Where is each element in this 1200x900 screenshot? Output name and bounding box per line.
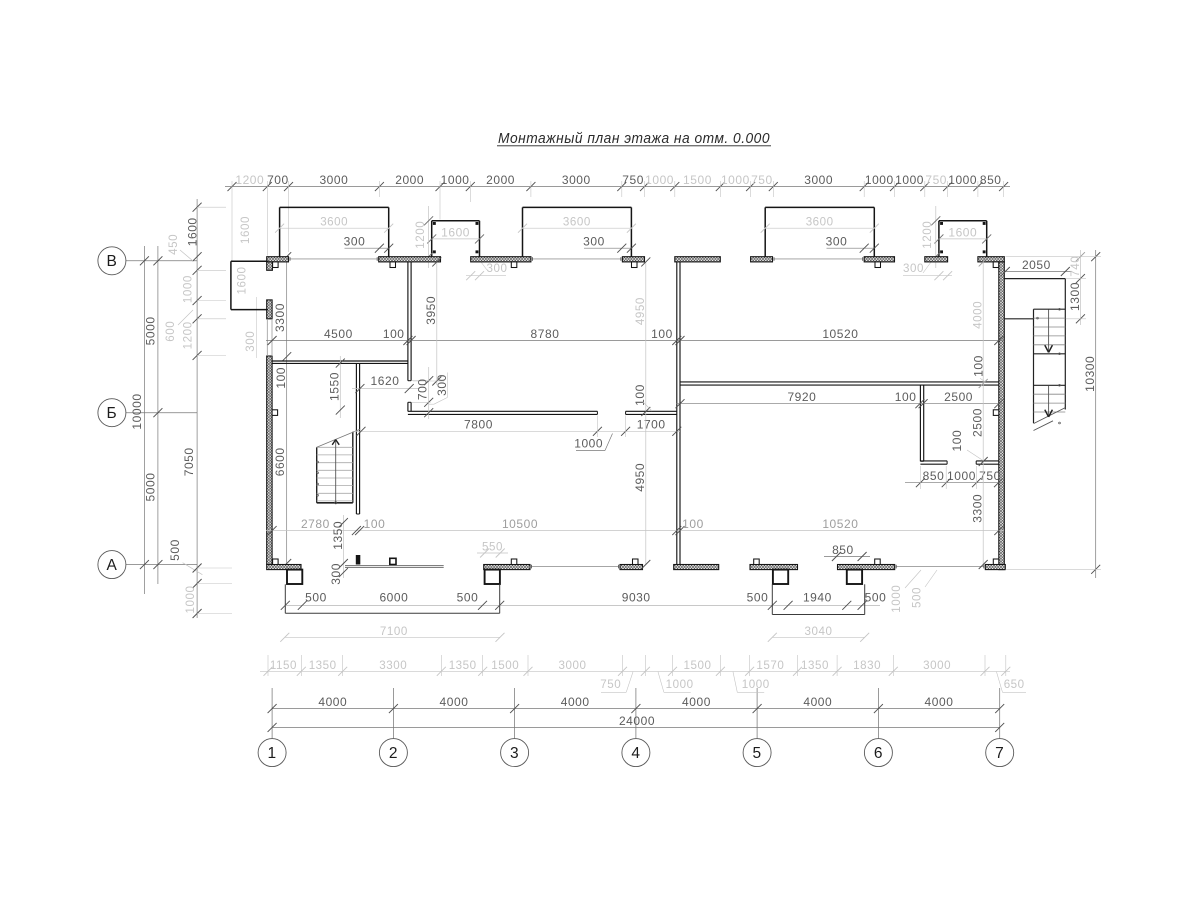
svg-text:1570: 1570	[756, 659, 784, 672]
svg-text:1300: 1300	[1068, 282, 1082, 311]
svg-text:500: 500	[168, 539, 182, 561]
svg-text:3: 3	[510, 745, 519, 762]
svg-text:1000: 1000	[574, 437, 603, 451]
svg-text:1000: 1000	[895, 173, 924, 187]
svg-text:1000: 1000	[865, 173, 894, 187]
svg-text:1200: 1200	[414, 221, 427, 249]
svg-text:5000: 5000	[144, 316, 158, 345]
svg-text:1600: 1600	[185, 217, 199, 246]
svg-text:7: 7	[995, 745, 1004, 762]
svg-text:850: 850	[980, 173, 1002, 187]
svg-text:2500: 2500	[971, 408, 985, 437]
svg-text:7050: 7050	[182, 447, 196, 476]
svg-text:1200: 1200	[182, 321, 195, 349]
svg-text:1000: 1000	[182, 275, 195, 303]
svg-text:4950: 4950	[633, 463, 647, 492]
svg-text:740: 740	[1069, 256, 1082, 277]
svg-text:9030: 9030	[622, 591, 651, 605]
svg-text:100: 100	[895, 390, 917, 404]
svg-text:100: 100	[651, 327, 673, 341]
svg-text:1700: 1700	[637, 418, 666, 432]
svg-text:750: 750	[600, 678, 621, 691]
svg-text:1000: 1000	[184, 586, 197, 614]
svg-text:550: 550	[482, 541, 503, 554]
svg-text:700: 700	[267, 173, 289, 187]
svg-text:3000: 3000	[562, 173, 591, 187]
svg-text:Монтажный план этажа на отм. 0: Монтажный план этажа на отм. 0.000	[498, 130, 770, 147]
svg-text:100: 100	[633, 384, 647, 406]
svg-text:1600: 1600	[948, 225, 977, 239]
svg-text:Б: Б	[107, 405, 118, 422]
svg-text:300: 300	[244, 331, 257, 352]
svg-text:1350: 1350	[801, 659, 829, 672]
svg-text:2: 2	[389, 745, 398, 762]
svg-text:2780: 2780	[301, 517, 330, 531]
svg-text:1: 1	[268, 745, 277, 762]
svg-text:3600: 3600	[563, 216, 591, 229]
svg-text:3000: 3000	[559, 659, 587, 672]
svg-text:850: 850	[923, 469, 945, 483]
svg-text:1000: 1000	[645, 173, 674, 187]
svg-text:3300: 3300	[379, 659, 407, 672]
svg-text:3950: 3950	[424, 296, 438, 325]
svg-text:1200: 1200	[921, 221, 934, 249]
svg-text:500: 500	[457, 591, 479, 605]
svg-text:1350: 1350	[449, 659, 477, 672]
svg-text:10000: 10000	[130, 393, 144, 429]
svg-text:500: 500	[865, 591, 887, 605]
svg-text:100: 100	[682, 517, 704, 531]
svg-text:7800: 7800	[464, 418, 493, 432]
svg-text:5: 5	[753, 745, 762, 762]
svg-text:3000: 3000	[804, 173, 833, 187]
svg-text:450: 450	[167, 234, 180, 255]
svg-text:1500: 1500	[684, 659, 712, 672]
svg-text:300: 300	[826, 235, 848, 249]
svg-text:100: 100	[950, 430, 964, 452]
svg-text:100: 100	[383, 327, 405, 341]
svg-text:1620: 1620	[371, 374, 400, 388]
svg-text:750: 750	[622, 173, 644, 187]
svg-text:10300: 10300	[1083, 356, 1097, 392]
svg-text:300: 300	[487, 262, 508, 275]
svg-text:300: 300	[435, 374, 449, 396]
svg-text:4000: 4000	[925, 695, 954, 709]
svg-text:1550: 1550	[328, 372, 342, 401]
svg-text:4950: 4950	[634, 297, 647, 325]
svg-text:750: 750	[925, 173, 947, 187]
svg-text:1500: 1500	[683, 173, 712, 187]
svg-text:4000: 4000	[682, 695, 711, 709]
svg-text:750: 750	[979, 469, 1001, 483]
svg-text:4000: 4000	[318, 695, 347, 709]
svg-text:100: 100	[972, 355, 986, 377]
svg-text:А: А	[106, 557, 117, 574]
svg-text:500: 500	[305, 591, 327, 605]
svg-text:4000: 4000	[972, 301, 985, 329]
svg-text:750: 750	[751, 173, 773, 187]
svg-text:1000: 1000	[948, 173, 977, 187]
svg-text:8780: 8780	[531, 327, 560, 341]
svg-text:850: 850	[832, 543, 854, 557]
svg-text:1150: 1150	[270, 659, 297, 672]
svg-text:2500: 2500	[944, 390, 973, 404]
svg-text:4000: 4000	[561, 695, 590, 709]
svg-text:1000: 1000	[947, 469, 976, 483]
svg-text:2050: 2050	[1022, 258, 1051, 272]
svg-text:1600: 1600	[236, 267, 249, 295]
svg-text:600: 600	[164, 321, 177, 342]
svg-text:1000: 1000	[441, 173, 470, 187]
svg-text:1500: 1500	[491, 659, 519, 672]
svg-text:7920: 7920	[787, 390, 816, 404]
svg-text:3600: 3600	[320, 216, 348, 229]
svg-text:500: 500	[910, 587, 923, 608]
svg-text:3600: 3600	[806, 216, 834, 229]
svg-text:1000: 1000	[742, 678, 770, 691]
svg-text:10520: 10520	[822, 327, 858, 341]
svg-text:1000: 1000	[890, 585, 903, 613]
svg-text:1600: 1600	[239, 216, 252, 244]
svg-text:1200: 1200	[235, 173, 264, 187]
svg-text:4: 4	[631, 745, 640, 762]
svg-text:500: 500	[747, 591, 769, 605]
svg-text:10500: 10500	[502, 517, 538, 531]
svg-text:100: 100	[364, 517, 386, 531]
svg-text:1350: 1350	[331, 521, 345, 550]
svg-text:1600: 1600	[441, 225, 470, 239]
svg-text:5000: 5000	[144, 473, 158, 502]
svg-text:7100: 7100	[380, 625, 408, 638]
svg-text:4500: 4500	[324, 327, 353, 341]
svg-text:2000: 2000	[486, 173, 515, 187]
svg-text:100: 100	[274, 367, 288, 389]
svg-text:3300: 3300	[273, 303, 287, 332]
svg-text:3000: 3000	[319, 173, 348, 187]
svg-text:6000: 6000	[379, 591, 408, 605]
svg-text:6600: 6600	[273, 447, 287, 476]
svg-text:300: 300	[329, 563, 343, 585]
svg-text:3300: 3300	[971, 494, 985, 523]
svg-text:4000: 4000	[440, 695, 469, 709]
svg-text:300: 300	[903, 262, 924, 275]
svg-text:2000: 2000	[395, 173, 424, 187]
svg-text:3000: 3000	[923, 659, 951, 672]
svg-text:24000: 24000	[619, 714, 655, 728]
svg-text:В: В	[106, 253, 117, 270]
svg-text:700: 700	[415, 378, 429, 400]
svg-text:1940: 1940	[803, 591, 832, 605]
svg-text:300: 300	[583, 235, 605, 249]
svg-text:1830: 1830	[853, 659, 881, 672]
svg-text:10520: 10520	[822, 517, 858, 531]
svg-text:3040: 3040	[805, 625, 833, 638]
svg-text:1000: 1000	[721, 173, 750, 187]
svg-text:1000: 1000	[666, 678, 694, 691]
svg-text:4000: 4000	[803, 695, 832, 709]
svg-text:650: 650	[1004, 678, 1025, 691]
svg-text:300: 300	[344, 235, 366, 249]
svg-text:1350: 1350	[309, 659, 337, 672]
svg-text:6: 6	[874, 745, 883, 762]
